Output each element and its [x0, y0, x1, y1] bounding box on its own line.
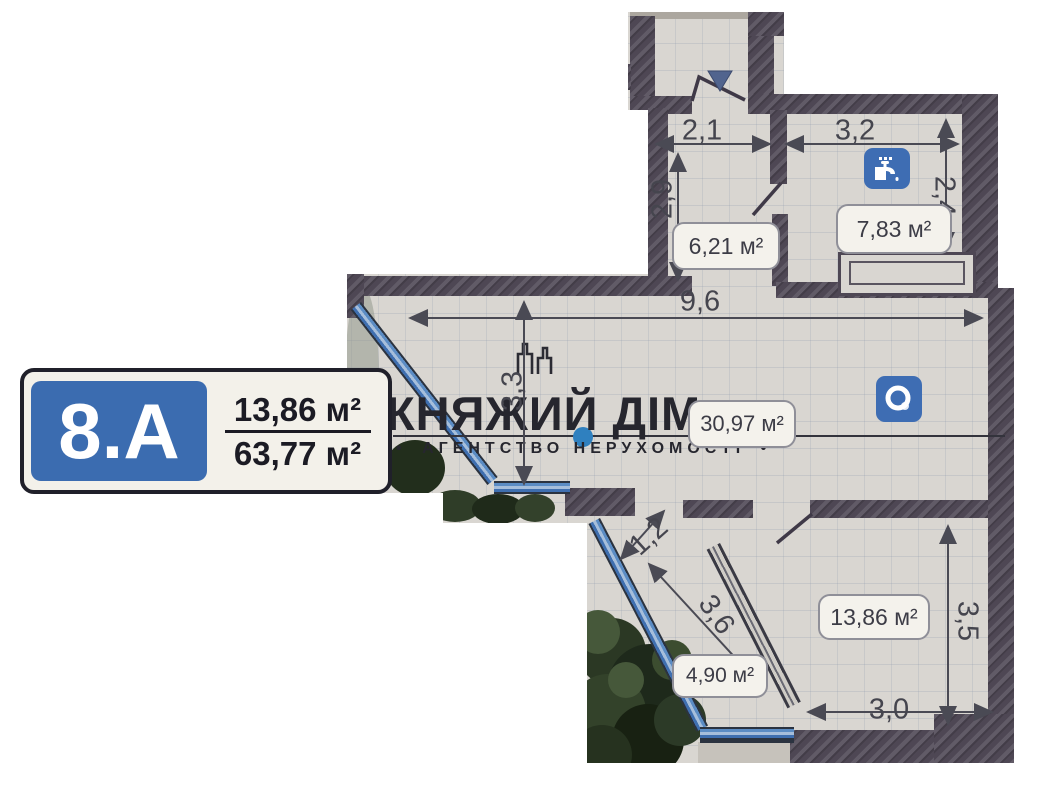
unit-room-area: 13,86 м²	[234, 393, 361, 426]
unit-number: 8.A	[31, 381, 207, 481]
dimension-hallway-depth: 2,9	[647, 179, 680, 219]
dimension-living-depth: 3,3	[497, 371, 530, 411]
bedroom-door-leaf	[777, 514, 812, 543]
dimension-bathroom-width: 3,2	[835, 115, 875, 148]
faucet-icon	[864, 148, 910, 189]
dimension-bedroom-width: 3,0	[869, 694, 909, 727]
bathroom-area-label: 7,83 м²	[836, 204, 952, 254]
hallway-area-label: 6,21 м²	[672, 222, 780, 270]
dimension-hallway-width: 2,1	[682, 115, 722, 148]
entrance-triangle-icon	[708, 71, 732, 91]
floor-plan-page: КНЯЖИЙ ДІМ • АГЕНТСТВО НЕРУХОМОСТІ •	[0, 0, 1064, 800]
dimension-bedroom-depth: 3,5	[951, 601, 984, 641]
unit-badge: 8.A 13,86 м² 63,77 м²	[20, 368, 392, 494]
washing-machine-icon	[876, 376, 922, 422]
unit-total-area: 63,77 м²	[234, 437, 361, 470]
balcony-area-label: 4,90 м²	[672, 654, 768, 698]
living-room-area-label: 30,97 м²	[688, 400, 796, 448]
unit-areas: 13,86 м² 63,77 м²	[207, 393, 388, 470]
bathroom-door-leaf	[753, 183, 781, 215]
badge-divider	[225, 430, 371, 433]
bedroom-area-label: 13,86 м²	[818, 594, 930, 640]
dimension-living-width: 9,6	[680, 286, 720, 319]
